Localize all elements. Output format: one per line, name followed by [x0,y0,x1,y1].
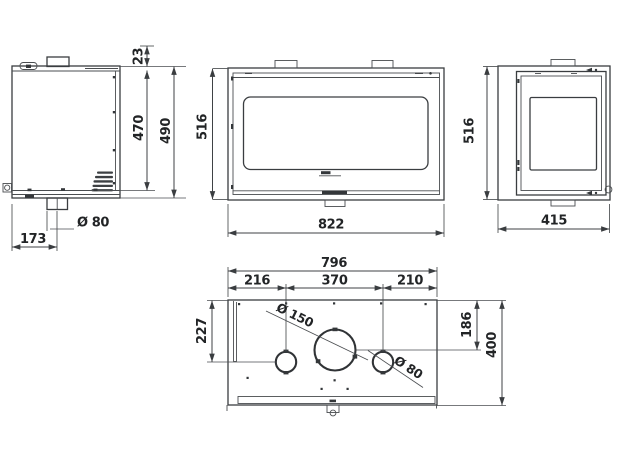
dim-flue-diameter: Ø 80 [77,216,109,231]
left-side-view [3,57,120,210]
top-tab-left [275,61,297,69]
front-view [228,61,444,207]
dim-right-depth: 415 [541,214,567,229]
wall-bracket [3,184,12,193]
dim-flue-offset: 173 [20,232,46,247]
right-side-view [498,60,612,207]
dim-top-right-offset: 210 [397,274,423,289]
dim-overall-height: 490 [159,118,174,144]
side-glass [530,98,597,171]
hinge-marks [517,79,519,171]
dim-body-height: 470 [132,115,147,141]
right-outlet [373,350,393,375]
dim-front-height: 516 [196,114,211,140]
dim-top-overall-depth: 400 [485,332,500,358]
bottom-vent [322,191,347,194]
top-view-dimensions: 796 216 370 210 227 186 400 Ø 150 Ø 80 [195,256,506,406]
flue-stub [47,198,68,210]
drawing-sheet: 23 470 490 Ø 80 173 [0,0,624,460]
dim-top-center-spacing: 370 [322,274,348,289]
screw-marks [113,76,115,184]
dim-front-width: 822 [318,218,344,233]
dim-top-left-depth: 227 [195,318,210,344]
right-view-dimensions: 516 415 [463,67,610,234]
top-collar [47,57,69,67]
vent-slots [92,172,114,192]
dim-top-left-offset: 216 [244,274,270,289]
base-bolts [25,188,98,198]
front-edge-strip [238,397,435,404]
top-tab-right [372,61,393,69]
dim-top-flue-depth: 186 [460,312,475,338]
technical-drawing: 23 470 490 Ø 80 173 [0,0,624,460]
brand-logo [319,171,341,176]
door-glass [244,97,429,170]
dim-right-height: 516 [463,118,478,144]
bottom-tab [551,200,575,206]
left-outlet [276,350,296,375]
left-view-dimensions: 23 470 490 Ø 80 173 [12,46,186,251]
front-latch-tab [327,405,339,416]
dim-top-overall-width: 796 [321,256,347,271]
screw-marks-top [238,302,427,390]
bottom-tab [325,200,345,207]
dim-collar-height: 23 [132,48,147,66]
center-flue-outlet [315,328,358,371]
dim-top-flue-diameter: Ø 150 [274,300,316,331]
top-collar [551,60,575,67]
